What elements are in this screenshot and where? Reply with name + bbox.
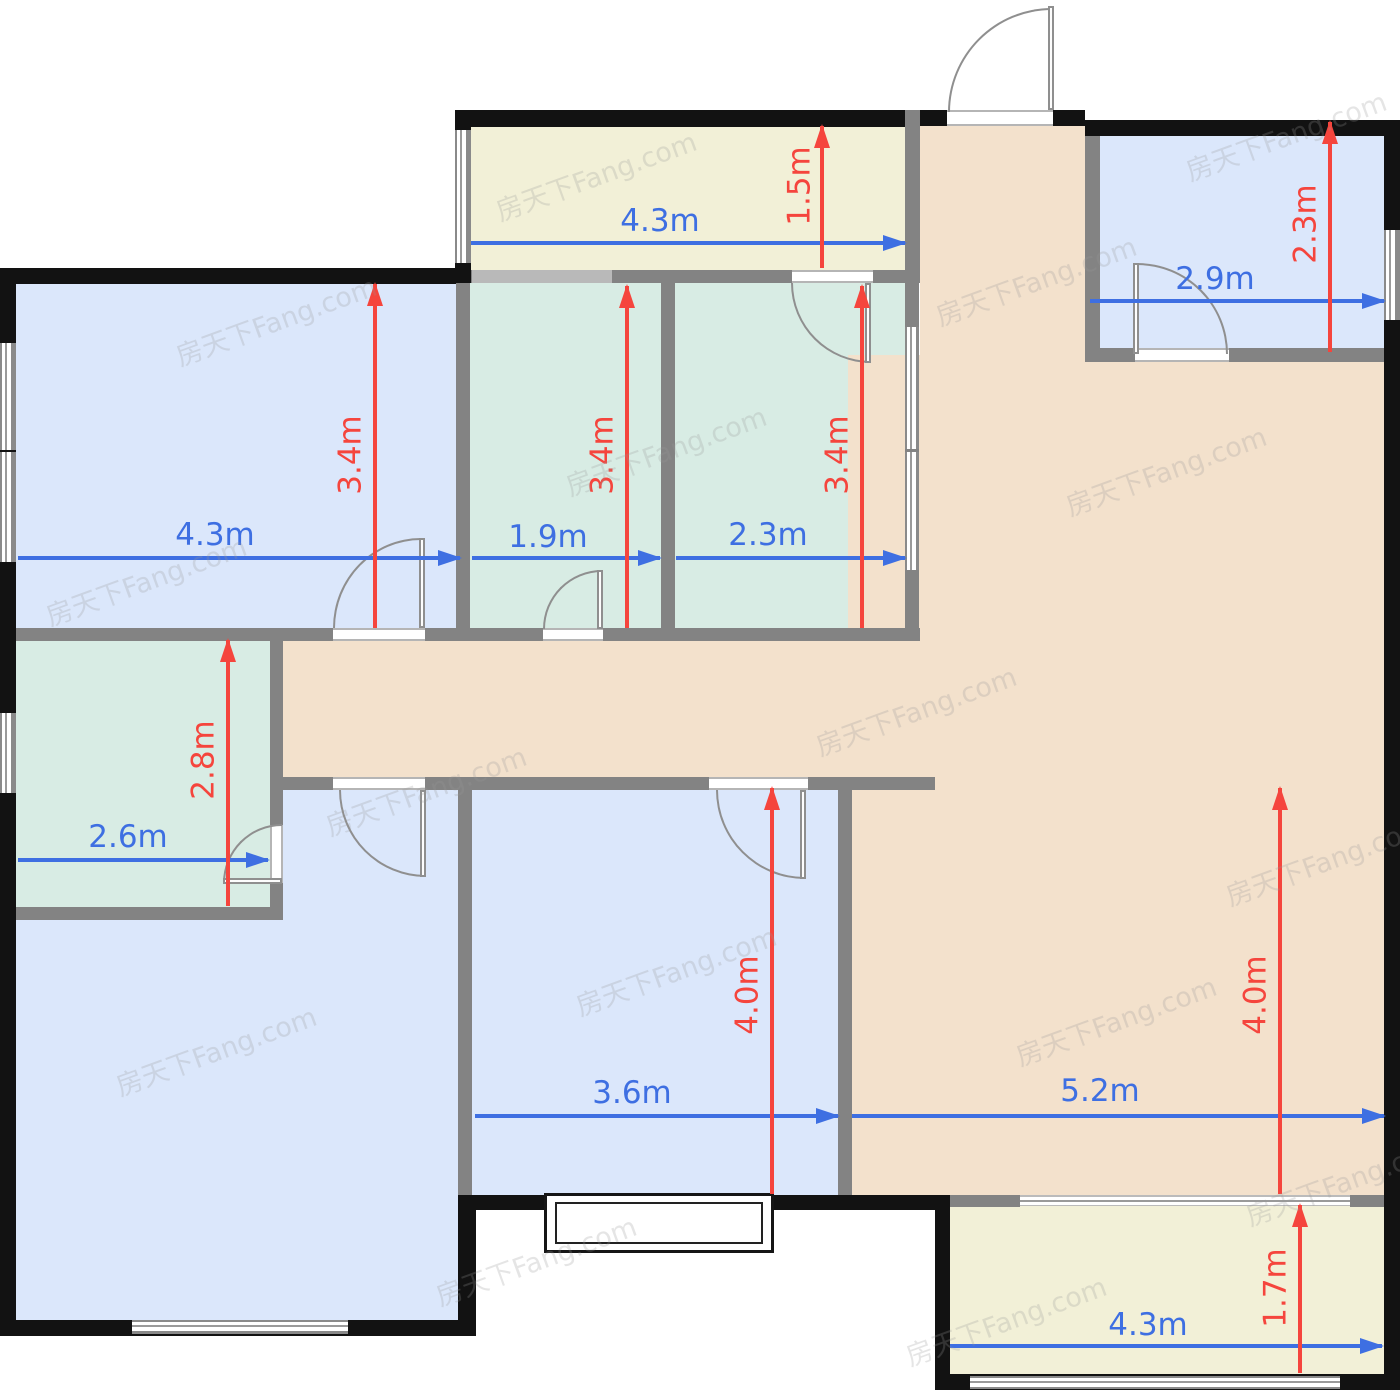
wall-balcony-top-right: [905, 110, 920, 283]
dim-balcony-top-width-arrow: [471, 241, 905, 245]
wall-top-right-room-bottom: [1085, 348, 1384, 362]
dim-bathroom-left-depth-arrow: [226, 640, 230, 906]
dim-bathroom-1-width-label: 1.9m: [508, 522, 588, 553]
dim-bathroom-left-depth-label: 2.8m: [189, 720, 220, 800]
wall-bottom-mid-left: [476, 1195, 552, 1210]
door-bedroom-bottom-leaf: [800, 790, 806, 879]
dim-bathroom-1-depth-label: 3.4m: [588, 415, 619, 495]
door-bathroom-left-leaf: [223, 878, 282, 884]
wall-step-vertical: [458, 1195, 476, 1336]
hall-corridor-top: [920, 126, 1085, 355]
dim-bedroom-top-right-depth-arrow: [1328, 122, 1332, 352]
wall-bedroom-bottom-right: [838, 790, 852, 1195]
wall-right-exterior: [1384, 345, 1400, 1205]
room-living-main: [848, 355, 1384, 1195]
dim-bathroom-2-depth-label: 3.4m: [823, 415, 854, 495]
dim-bedroom-bottom-depth-label: 4.0m: [733, 955, 764, 1035]
wall-bath1-left: [456, 283, 470, 641]
wall-balcony-bottom-left: [935, 1195, 950, 1390]
wall-balcony-bottom-top-l: [950, 1195, 1020, 1207]
window-bath2-right-1: [905, 327, 919, 449]
window-bottom-left-room: [132, 1320, 348, 1334]
wall-entry-top-left: [920, 110, 947, 126]
wall-balcony-bottom-right: [1384, 1195, 1400, 1390]
sill-bedroom-left: [333, 628, 425, 641]
door-bedroom-top-right-leaf: [1133, 263, 1139, 354]
dim-balcony-bottom-depth-arrow: [1298, 1205, 1302, 1373]
sill-entry-door: [947, 110, 1053, 126]
dim-bedroom-bottom-depth-arrow: [770, 788, 774, 1194]
room-bedroom-bottom-left: [16, 920, 458, 1322]
dim-bathroom-left-width-label: 2.6m: [88, 822, 168, 853]
wall-bath1-bath2-divider: [661, 283, 675, 641]
room-balcony-top: [471, 126, 905, 270]
window-under-top-balcony: [472, 270, 612, 283]
wall-entry-top-right: [1053, 110, 1085, 126]
dim-balcony-bottom-width-arrow: [950, 1344, 1382, 1348]
room-balcony-bottom: [950, 1205, 1384, 1374]
wall-left-room-top: [0, 268, 465, 284]
wall-top-right-room-left: [1085, 136, 1100, 355]
dim-bedroom-top-right-width-arrow: [1090, 299, 1384, 303]
dim-bedroom-left-depth-arrow: [373, 284, 377, 628]
wall-balcony-bottom-top-r: [1350, 1195, 1384, 1207]
wall-bottom-mid-right: [770, 1195, 947, 1210]
window-balcony-top-left: [455, 130, 471, 263]
wall-hall-top: [16, 628, 920, 641]
sill-bedroom-bottom-left: [333, 777, 425, 790]
window-bedroom-left-2: [0, 452, 16, 562]
dim-bathroom-2-width-label: 2.3m: [728, 520, 808, 551]
entry-door-leaf: [1048, 6, 1054, 110]
wall-top-right-room-top: [1085, 120, 1400, 136]
window-bath-left: [0, 713, 16, 793]
window-bedroom-left-1: [0, 343, 16, 450]
door-bedroom-bottom-left-leaf: [420, 790, 426, 877]
dim-bathroom-2-depth-arrow: [860, 286, 864, 628]
dim-bedroom-top-right-depth-label: 2.3m: [1291, 184, 1322, 264]
wall-bath-left-bottom: [16, 907, 283, 920]
sill-bedroom-bottom: [709, 777, 808, 790]
dim-bedroom-top-right-width-label: 2.9m: [1175, 264, 1255, 295]
window-balcony-bottom: [970, 1376, 1340, 1389]
dim-balcony-top-depth-arrow: [820, 126, 824, 268]
wall-top-balcony-top: [455, 110, 920, 127]
dim-bedroom-left-width-label: 4.3m: [175, 520, 255, 551]
dim-bedroom-left-width-arrow: [18, 556, 460, 560]
dim-bathroom-1-width-arrow: [472, 556, 660, 560]
wall-bottom-rooms-divider: [458, 790, 472, 1195]
door-bathroom-1-leaf: [597, 570, 603, 629]
dim-bathroom-2-width-arrow: [676, 556, 905, 560]
dim-balcony-bottom-width-label: 4.3m: [1108, 1310, 1188, 1341]
sill-bathroom-2: [792, 270, 873, 283]
window-bath2-right-2: [905, 452, 919, 570]
dim-living-width-label: 5.2m: [1060, 1076, 1140, 1107]
room-bathroom-1: [470, 283, 661, 628]
dim-balcony-top-width-label: 4.3m: [620, 206, 700, 237]
dim-living-width-arrow: [852, 1114, 1384, 1118]
window-bedroom-top-right: [1384, 230, 1400, 320]
bay-window-inner: [555, 1202, 763, 1244]
sill-bathroom-1: [543, 628, 603, 641]
dim-bathroom-left-width-arrow: [18, 858, 268, 862]
dim-bedroom-bottom-width-arrow: [475, 1114, 838, 1118]
door-bedroom-left-leaf: [419, 538, 425, 628]
bay-window: [544, 1193, 774, 1253]
dim-bedroom-left-depth-label: 3.4m: [336, 415, 367, 495]
dim-bedroom-bottom-width-label: 3.6m: [592, 1078, 672, 1109]
dim-bathroom-1-depth-arrow: [625, 286, 629, 628]
dim-balcony-top-depth-label: 1.5m: [785, 146, 816, 226]
dim-living-depth-arrow: [1278, 788, 1282, 1194]
floor-plan: 4.3m 2.9m 4.3m 1.9m 2.3m 2.6m 3.6m 5.2m …: [0, 0, 1400, 1393]
dim-living-depth-label: 4.0m: [1241, 955, 1272, 1035]
dim-balcony-bottom-depth-label: 1.7m: [1261, 1248, 1292, 1328]
entry-door-arc: [948, 8, 1052, 112]
